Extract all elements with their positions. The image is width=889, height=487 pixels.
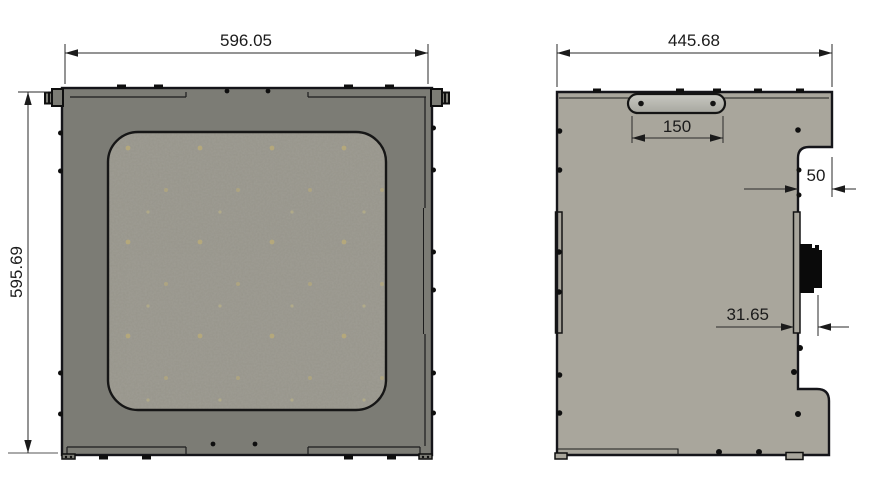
front-view: 596.05 595.69: [7, 31, 449, 460]
front-height-dimension-label: 595.69: [7, 246, 26, 298]
side-right-plate: [794, 212, 801, 333]
side-panel-body: [557, 92, 832, 455]
cad-drawing: 596.05 595.69: [0, 0, 889, 487]
front-width-dimension-label: 596.05: [220, 31, 272, 50]
side-width-dimension-label: 445.68: [668, 31, 720, 50]
side-notch-dimension-label: 50: [807, 166, 826, 185]
side-width-dimension: [557, 44, 832, 87]
side-connector-dimension-label: 31.65: [726, 305, 769, 324]
side-connector-block: [800, 244, 822, 293]
front-mesh-texture: [108, 132, 386, 410]
front-width-dimension: [65, 44, 428, 84]
drawing-canvas: 596.05 595.69: [0, 0, 889, 487]
side-handle-dimension-label: 150: [663, 117, 691, 136]
side-view: 445.68 150 50 31.65: [555, 31, 856, 460]
